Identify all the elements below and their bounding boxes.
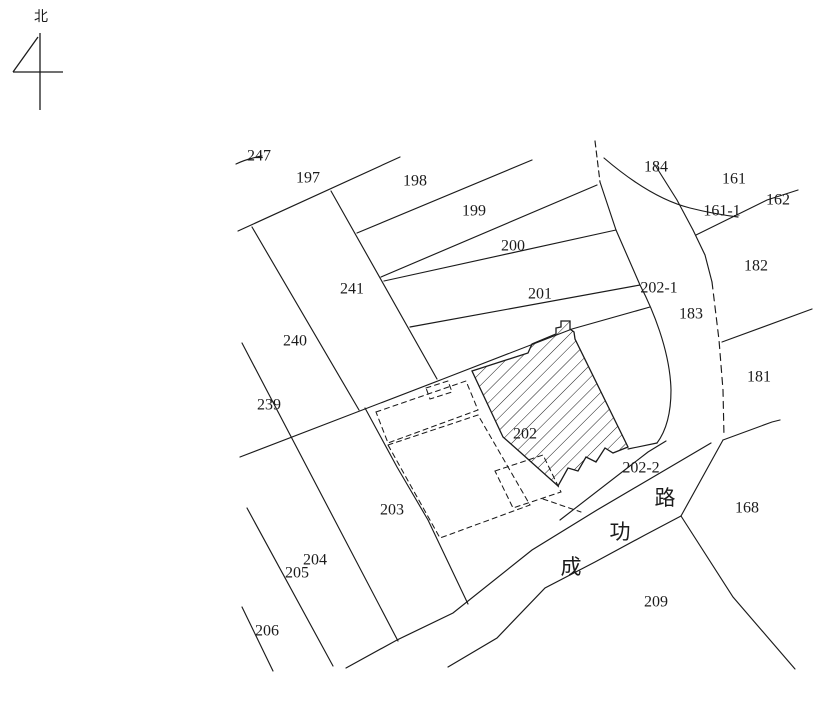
parcel-label-203: 203 (380, 502, 404, 519)
parcel-label-161-1: 161-1 (703, 203, 740, 220)
parcel-label-202-1: 202-1 (640, 280, 677, 297)
boundary-183-east-dashed (712, 282, 724, 437)
north-arrow-icon (13, 33, 63, 110)
road-name-char: 路 (655, 486, 676, 510)
boundary-240-241 (252, 227, 359, 410)
boundary-204-203 (242, 343, 398, 641)
parcel-label-202-2: 202-2 (622, 460, 659, 477)
road-name-char: 功 (610, 520, 631, 544)
parcel-label-184: 184 (644, 159, 668, 176)
road-name-labels: 成功路 (561, 486, 676, 579)
parcel-label-240: 240 (283, 333, 307, 350)
map-canvas: 北 (0, 0, 836, 720)
boundary-road-corner (681, 440, 723, 516)
parcel-label-201: 201 (528, 286, 552, 303)
parcel-label-199: 199 (462, 203, 486, 220)
parcel-label-209: 209 (644, 594, 668, 611)
boundary-181-168 (723, 420, 780, 440)
building-outline (543, 499, 581, 512)
boundary-strip-east-dashed (595, 141, 600, 182)
parcel-label-202: 202 (513, 426, 537, 443)
parcel-label-162: 162 (766, 192, 790, 209)
boundary-168-209 (681, 516, 795, 669)
parcel-label-198: 198 (403, 173, 427, 190)
parcel-label-168: 168 (735, 500, 759, 517)
boundary-205-204 (247, 508, 333, 666)
parcel-label-205: 205 (285, 565, 309, 582)
parcel-label-161: 161 (722, 171, 746, 188)
boundary-strip-east (600, 182, 640, 285)
parcel-label-241: 241 (340, 281, 364, 298)
road-name-char: 成 (561, 555, 582, 579)
boundary-199-200 (381, 185, 597, 277)
parcel-label-197: 197 (296, 170, 320, 187)
cadastral-map: 北 (0, 0, 836, 720)
parcel-label-183: 183 (679, 306, 703, 323)
boundary-182-181 (722, 309, 812, 342)
boundary-198-199 (357, 160, 532, 233)
parcel-label-200: 200 (501, 238, 525, 255)
boundary-top (238, 157, 400, 231)
parcel-label-239: 239 (257, 397, 281, 414)
boundary-201-south (410, 285, 640, 327)
parcel-label-181: 181 (747, 369, 771, 386)
parcel-label-206: 206 (255, 623, 279, 640)
hatched-parcel-outline (472, 321, 628, 486)
road-outline (346, 443, 711, 668)
boundary-202-connector (628, 443, 657, 449)
parcel-label-247: 247 (247, 148, 271, 165)
road-northwest-edge (346, 443, 711, 668)
parcel-label-182: 182 (744, 258, 768, 275)
road-southeast-edge (448, 516, 681, 667)
boundary-184-east (655, 165, 712, 282)
boundary-200-201 (384, 230, 616, 281)
hatched-parcel-202 (472, 321, 628, 486)
north-label: 北 (34, 9, 48, 25)
